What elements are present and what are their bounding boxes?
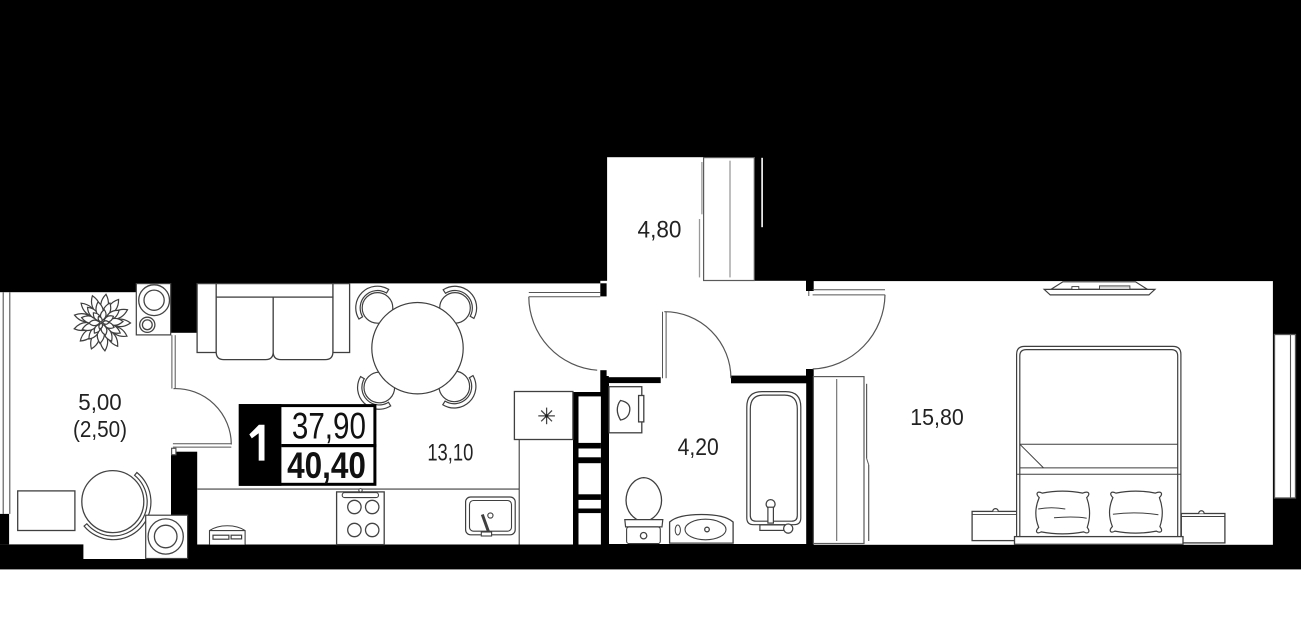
svg-text:5,00: 5,00: [78, 388, 121, 415]
svg-text:37,90: 37,90: [292, 405, 366, 447]
svg-text:(2,50): (2,50): [73, 416, 127, 443]
svg-text:4,20: 4,20: [678, 434, 719, 461]
svg-text:13,10: 13,10: [427, 438, 473, 466]
svg-text:4,80: 4,80: [638, 216, 682, 243]
svg-text:15,80: 15,80: [910, 404, 963, 430]
svg-text:40,40: 40,40: [287, 446, 366, 487]
